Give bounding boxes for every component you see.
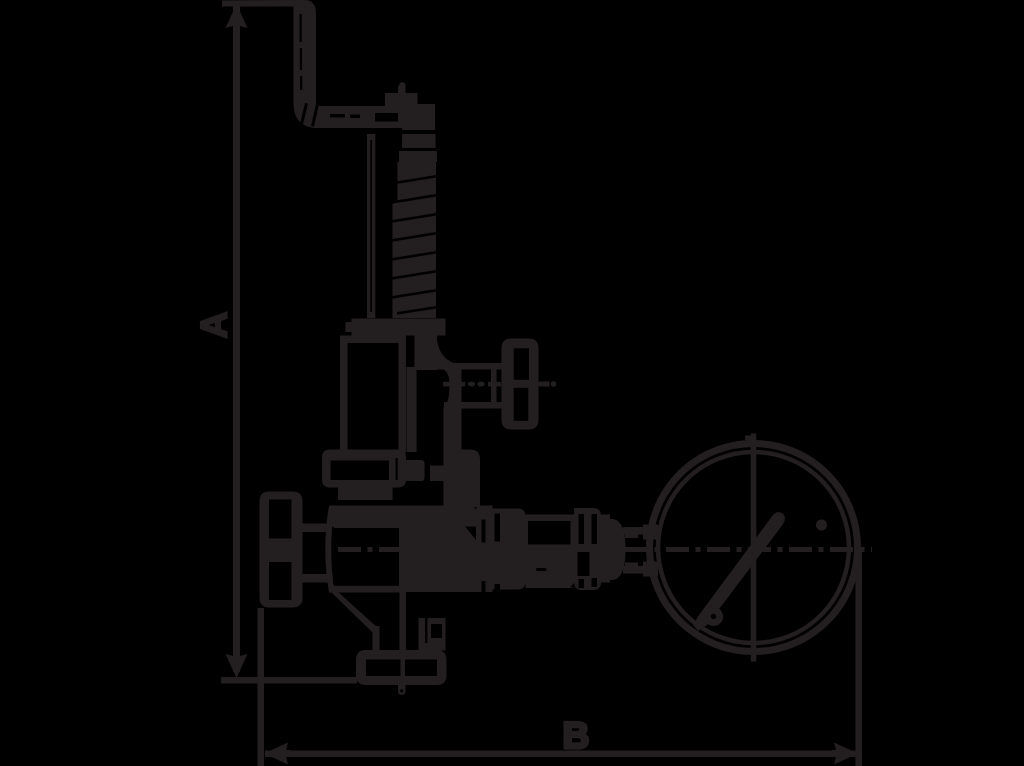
svg-text:B: B xyxy=(563,715,590,756)
svg-text:A: A xyxy=(194,312,235,339)
